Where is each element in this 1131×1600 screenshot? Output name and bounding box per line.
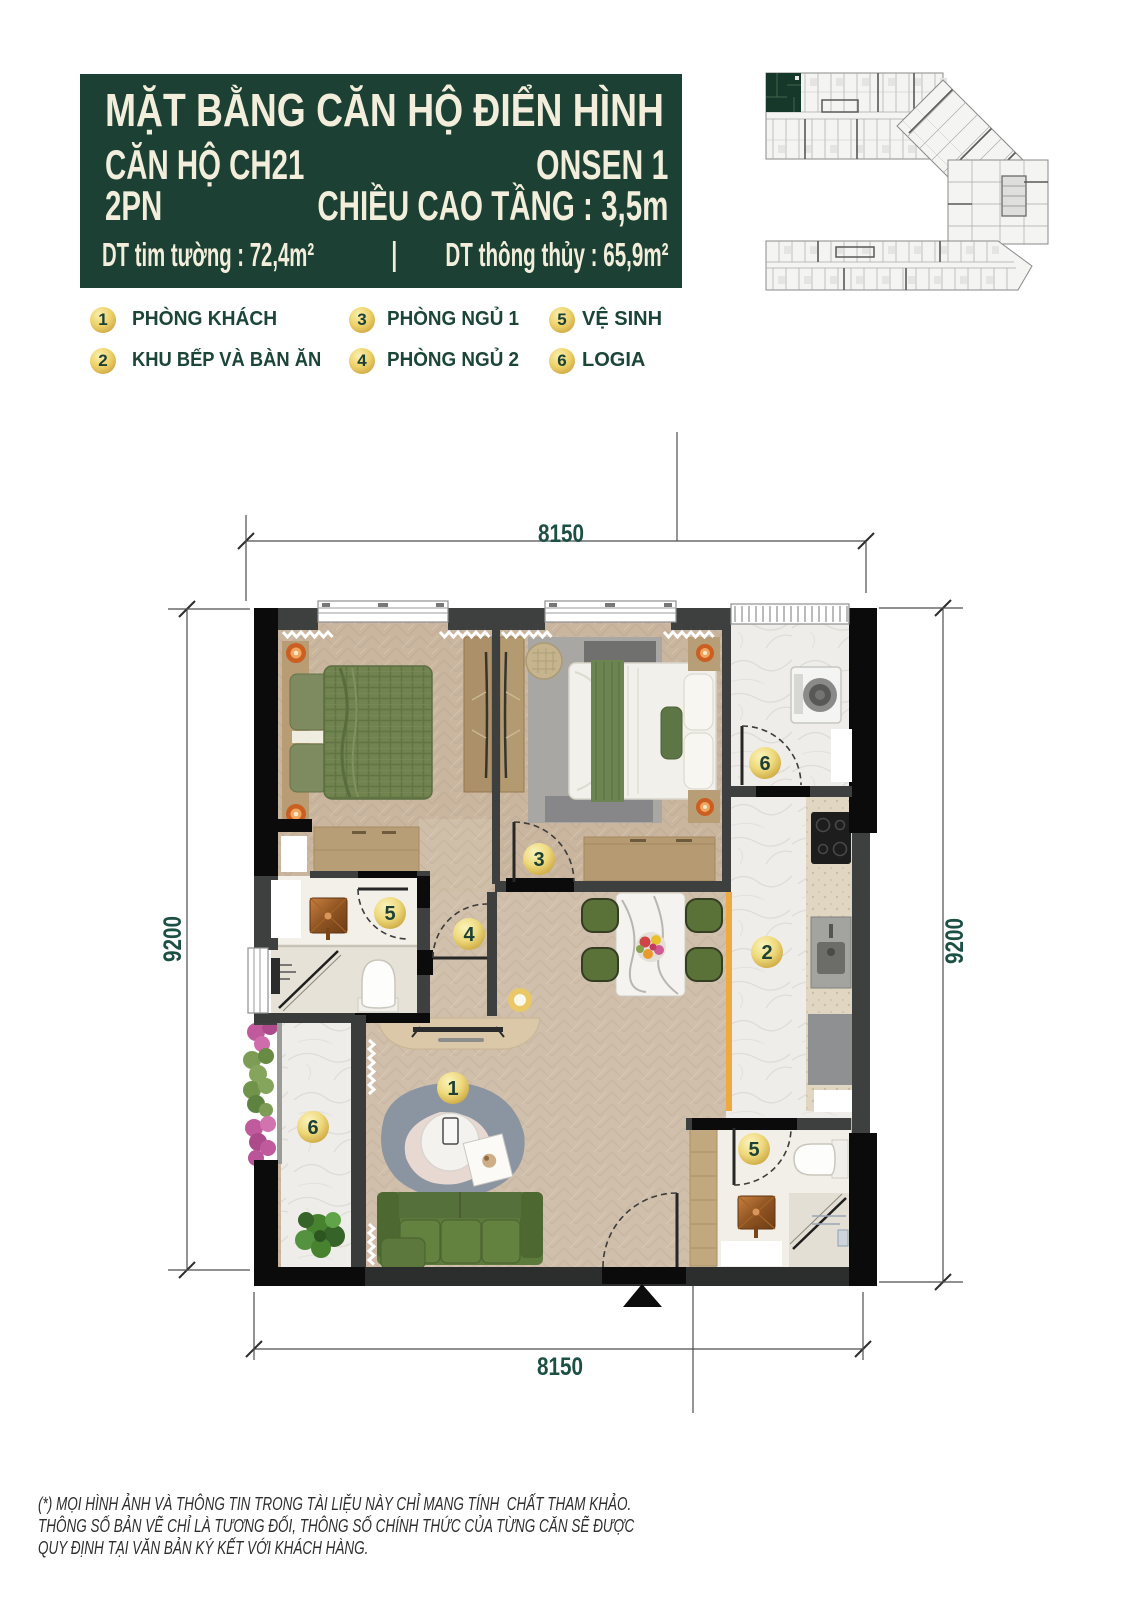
svg-text:1: 1 [447, 1078, 458, 1100]
svg-text:9200: 9200 [941, 918, 969, 964]
svg-text:6: 6 [759, 753, 770, 775]
svg-text:3: 3 [533, 849, 544, 871]
svg-text:8150: 8150 [537, 1353, 583, 1381]
svg-text:2: 2 [761, 942, 772, 964]
svg-text:5: 5 [384, 903, 395, 925]
svg-text:8150: 8150 [538, 520, 584, 548]
svg-text:9200: 9200 [159, 916, 187, 962]
svg-text:5: 5 [748, 1139, 759, 1161]
svg-text:4: 4 [463, 924, 475, 946]
svg-text:6: 6 [307, 1117, 318, 1139]
